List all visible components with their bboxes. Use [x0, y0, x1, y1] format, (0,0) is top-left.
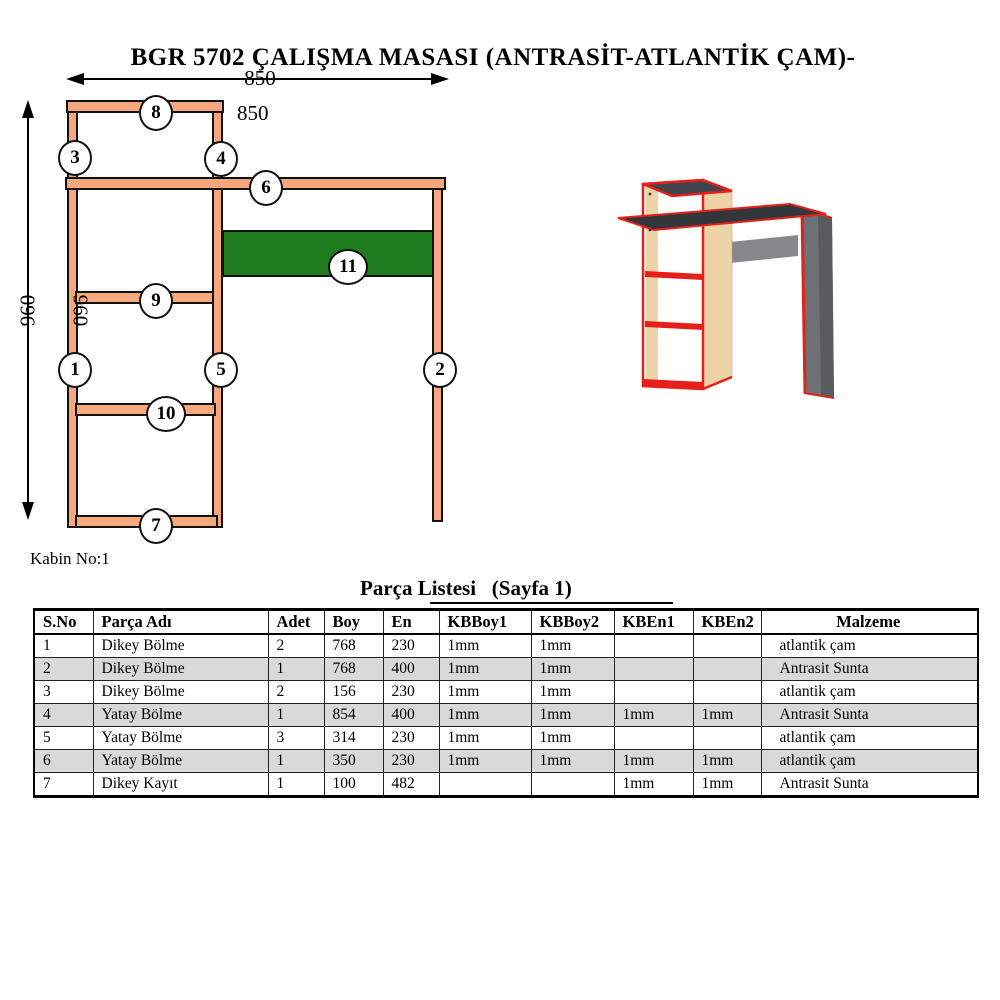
table-cell — [693, 658, 761, 681]
table-cell — [693, 681, 761, 704]
table-cell: 1mm — [439, 658, 531, 681]
table-cell: 1mm — [693, 773, 761, 797]
table-cell: 2 — [34, 658, 93, 681]
dim-height-label-secondary: 960 — [68, 286, 93, 336]
table-row: 5Yatay Bölme33142301mm1mmatlantik çam — [34, 727, 978, 750]
table-cell: 100 — [324, 773, 383, 797]
table-cell: Yatay Bölme — [93, 704, 268, 727]
table-cell: Dikey Bölme — [93, 681, 268, 704]
column-header-6: KBBoy2 — [531, 610, 614, 635]
table-cell: 1mm — [614, 773, 693, 797]
part-callout-5: 5 — [204, 352, 238, 388]
table-cell: atlantik çam — [761, 634, 978, 658]
part-callout-2: 2 — [423, 352, 457, 388]
column-header-4: En — [383, 610, 439, 635]
table-header-row: S.NoParça AdıAdetBoyEnKBBoy1KBBoy2KBEn1K… — [34, 610, 978, 635]
table-cell: Dikey Kayıt — [93, 773, 268, 797]
part-callout-10: 10 — [146, 396, 186, 432]
table-cell: atlantik çam — [761, 750, 978, 773]
part-callout-9: 9 — [139, 283, 173, 319]
table-cell: 6 — [34, 750, 93, 773]
table-cell: 5 — [34, 727, 93, 750]
table-cell: 482 — [383, 773, 439, 797]
table-cell: 2 — [268, 634, 324, 658]
table-cell: 4 — [34, 704, 93, 727]
table-cell — [614, 634, 693, 658]
column-header-0: S.No — [34, 610, 93, 635]
table-cell — [439, 773, 531, 797]
table-cell: 1mm — [439, 681, 531, 704]
table-cell: 768 — [324, 658, 383, 681]
table-cell: Antrasit Sunta — [761, 658, 978, 681]
page-title: BGR 5702 ÇALIŞMA MASASI (ANTRASİT-ATLANT… — [0, 44, 986, 72]
table-cell: 1mm — [531, 727, 614, 750]
table-cell: 156 — [324, 681, 383, 704]
part-callout-8: 8 — [139, 95, 173, 131]
table-cell: 230 — [383, 727, 439, 750]
table-cell: 1mm — [614, 704, 693, 727]
table-cell: 1mm — [531, 750, 614, 773]
dim-width-label-secondary: 850 — [237, 101, 269, 126]
table-cell: 1mm — [693, 750, 761, 773]
title-underline — [430, 602, 673, 604]
column-header-1: Parça Adı — [93, 610, 268, 635]
table-cell: 1 — [268, 773, 324, 797]
table-row: 2Dikey Bölme17684001mm1mmAntrasit Sunta — [34, 658, 978, 681]
table-cell: Yatay Bölme — [93, 727, 268, 750]
table-cell: 1mm — [531, 634, 614, 658]
table-cell: 1 — [268, 750, 324, 773]
table-cell: 1mm — [439, 704, 531, 727]
table-cell: Yatay Bölme — [93, 750, 268, 773]
furniture-spec-sheet: { "page": { "title": "BGR 5702 ÇALIŞMA M… — [0, 0, 1000, 1000]
table-cell — [614, 681, 693, 704]
part-callout-3: 3 — [58, 140, 92, 176]
table-cell: 768 — [324, 634, 383, 658]
table-row: 7Dikey Kayıt11004821mm1mmAntrasit Sunta — [34, 773, 978, 797]
table-cell: 1mm — [439, 750, 531, 773]
table-cell — [531, 773, 614, 797]
table-cell: 3 — [268, 727, 324, 750]
table-row: 1Dikey Bölme27682301mm1mmatlantik çam — [34, 634, 978, 658]
table-cell — [693, 727, 761, 750]
table-cell: atlantik çam — [761, 727, 978, 750]
table-cell: 7 — [34, 773, 93, 797]
column-header-2: Adet — [268, 610, 324, 635]
table-cell: atlantik çam — [761, 681, 978, 704]
table-row: 4Yatay Bölme18544001mm1mm1mm1mmAntrasit … — [34, 704, 978, 727]
table-cell: 230 — [383, 681, 439, 704]
table-cell: 3 — [34, 681, 93, 704]
parts-table: S.NoParça AdıAdetBoyEnKBBoy1KBBoy2KBEn1K… — [33, 608, 979, 798]
table-cell: Antrasit Sunta — [761, 704, 978, 727]
column-header-3: Boy — [324, 610, 383, 635]
table-cell: Antrasit Sunta — [761, 773, 978, 797]
table-cell: 1mm — [531, 658, 614, 681]
part-callout-7: 7 — [139, 508, 173, 544]
cabinet-number-label: Kabin No:1 — [30, 549, 110, 569]
table-cell: 400 — [383, 704, 439, 727]
table-cell: 230 — [383, 750, 439, 773]
part-callout-11: 11 — [328, 249, 368, 285]
desk-3d-render — [612, 170, 852, 410]
parts-list-title: Parça Listesi (Sayfa 1) — [360, 576, 572, 601]
table-cell: 1mm — [439, 634, 531, 658]
table-cell: 2 — [268, 681, 324, 704]
part-callout-6: 6 — [249, 170, 283, 206]
dim-width-label: 850 — [225, 66, 295, 91]
table-cell: 1mm — [614, 750, 693, 773]
table-row: 3Dikey Bölme21562301mm1mmatlantik çam — [34, 681, 978, 704]
table-cell: 400 — [383, 658, 439, 681]
table-cell: 1 — [34, 634, 93, 658]
dim-height-label: 960 — [16, 286, 41, 336]
table-row: 6Yatay Bölme13502301mm1mm1mm1mmatlantik … — [34, 750, 978, 773]
table-cell: 1mm — [531, 681, 614, 704]
table-cell — [693, 634, 761, 658]
column-header-9: Malzeme — [761, 610, 978, 635]
part-callout-1: 1 — [58, 352, 92, 388]
table-cell: 854 — [324, 704, 383, 727]
column-header-5: KBBoy1 — [439, 610, 531, 635]
part-callout-4: 4 — [204, 141, 238, 177]
table-cell: Dikey Bölme — [93, 634, 268, 658]
table-cell: 1mm — [439, 727, 531, 750]
table-cell: 230 — [383, 634, 439, 658]
table-cell: 314 — [324, 727, 383, 750]
table-cell — [614, 658, 693, 681]
table-cell: Dikey Bölme — [93, 658, 268, 681]
table-cell: 1 — [268, 704, 324, 727]
column-header-7: KBEn1 — [614, 610, 693, 635]
column-header-8: KBEn2 — [693, 610, 761, 635]
table-cell: 1mm — [531, 704, 614, 727]
table-cell: 350 — [324, 750, 383, 773]
table-cell — [614, 727, 693, 750]
parts-table-container: S.NoParça AdıAdetBoyEnKBBoy1KBBoy2KBEn1K… — [33, 608, 977, 798]
table-cell: 1 — [268, 658, 324, 681]
table-cell: 1mm — [693, 704, 761, 727]
